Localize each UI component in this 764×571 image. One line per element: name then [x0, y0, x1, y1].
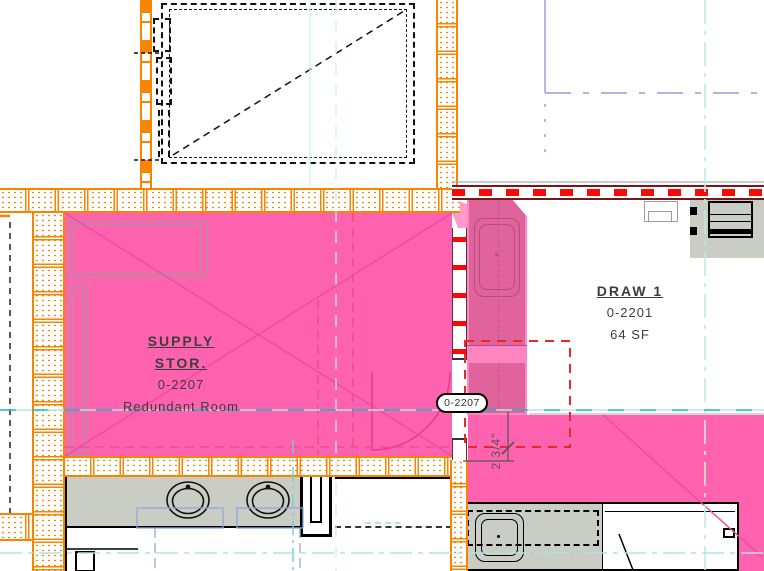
door-tag[interactable]: 0-2207 [436, 393, 488, 413]
room-label-draw1[interactable]: DRAW 1 0-2201 64 SF [570, 280, 690, 346]
dimension-text[interactable]: 2 3/4" [489, 423, 503, 479]
room-name-line2: STOR. [101, 352, 261, 374]
room-name-line1: SUPPLY [101, 330, 261, 352]
lav-sink-right[interactable] [247, 482, 289, 518]
room-number: 0-2207 [101, 374, 261, 396]
lav-sink-left[interactable] [167, 482, 209, 518]
clearance-zones [137, 508, 303, 571]
underlay-lines [545, 0, 764, 160]
room-description: Redundant Room [101, 396, 261, 418]
room-number: 0-2201 [570, 302, 690, 324]
room-area: 64 SF [570, 324, 690, 346]
fixture-box-bl[interactable] [76, 552, 94, 571]
shaft-diagonal [173, 11, 404, 155]
floor-plan-canvas: SUPPLY STOR. 0-2207 Redundant Room DRAW … [0, 0, 764, 571]
room-x-marker-corridor[interactable] [603, 415, 762, 557]
room-name: DRAW 1 [570, 280, 690, 302]
door-swing[interactable] [372, 372, 450, 450]
door-tag-text: 0-2207 [444, 397, 480, 409]
room-label-supply-storage[interactable]: SUPPLY STOR. 0-2207 Redundant Room [101, 330, 261, 418]
door-leaf-br[interactable] [619, 534, 633, 570]
